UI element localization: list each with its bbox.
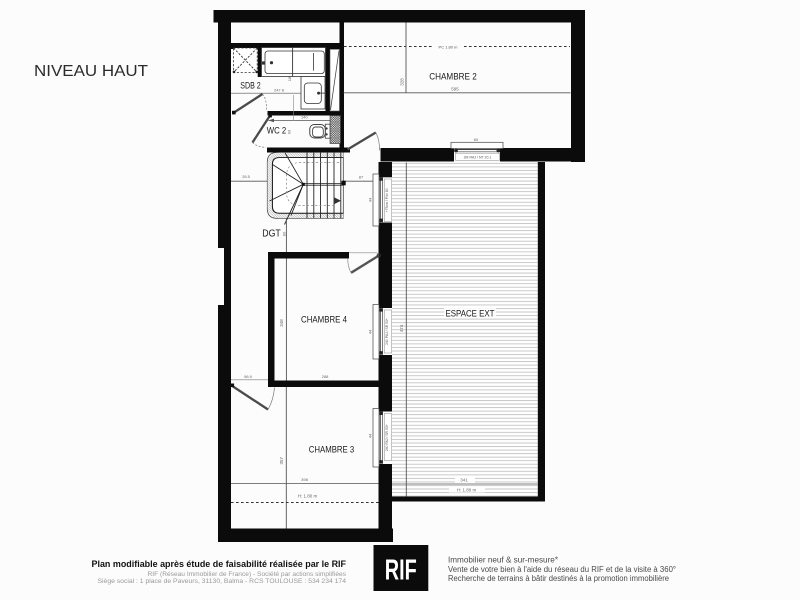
svg-text:93: 93 <box>287 129 292 134</box>
svg-text:87: 87 <box>359 175 364 180</box>
svg-text:RIF: RIF <box>385 555 417 587</box>
svg-text:140: 140 <box>301 115 308 120</box>
svg-text:RIF (Réseau Immobilier de Fran: RIF (Réseau Immobilier de France) - Soci… <box>148 571 347 578</box>
svg-text:Vente de votre bien à l'aide d: Vente de votre bien à l'aide du réseau d… <box>448 565 676 574</box>
svg-text:NIVEAU HAUT: NIVEAU HAUT <box>34 63 149 80</box>
svg-text:80: 80 <box>282 231 287 236</box>
svg-text:DGT: DGT <box>262 229 281 240</box>
svg-text:44: 44 <box>368 329 373 334</box>
svg-text:PC 1.80 m: PC 1.80 m <box>439 45 459 50</box>
svg-text:26.5: 26.5 <box>242 174 251 179</box>
svg-text:SDB 2: SDB 2 <box>240 81 261 91</box>
svg-text:44: 44 <box>368 197 373 202</box>
svg-text:348: 348 <box>279 319 284 327</box>
svg-text:18: 18 <box>287 76 292 81</box>
svg-text:44: 44 <box>368 433 373 438</box>
svg-text:595: 595 <box>451 86 459 91</box>
svg-text:398: 398 <box>301 477 308 482</box>
svg-text:Siège social : 1 place de Pave: Siège social : 1 place de Paveurs, 31130… <box>98 578 347 585</box>
svg-text:2M RAJ / NT 20.1: 2M RAJ / NT 20.1 <box>464 156 492 160</box>
svg-text:H: 1.80 m: H: 1.80 m <box>298 494 318 499</box>
svg-text:ESPACE EXT: ESPACE EXT <box>446 309 495 320</box>
svg-text:328: 328 <box>399 78 404 86</box>
svg-text:357: 357 <box>279 457 284 465</box>
svg-text:Immobilier neuf & sur-mesure*: Immobilier neuf & sur-mesure* <box>448 556 558 565</box>
svg-text:Recherche de terrains à bâtir: Recherche de terrains à bâtir destinés à… <box>448 574 669 583</box>
svg-text:60: 60 <box>474 137 479 142</box>
svg-text:CHAMBRE 4: CHAMBRE 4 <box>301 315 347 326</box>
svg-text:H: 1.80 m: H: 1.80 m <box>457 487 477 492</box>
svg-text:CHAMBRE 2: CHAMBRE 2 <box>429 72 477 83</box>
svg-text:341: 341 <box>460 478 468 483</box>
svg-text:96.9: 96.9 <box>244 374 253 379</box>
svg-text:240 PAJ / SR 53+: 240 PAJ / SR 53+ <box>385 318 389 345</box>
svg-text:474: 474 <box>399 324 404 332</box>
svg-text:WC 2: WC 2 <box>267 126 287 137</box>
svg-text:240 PAJ / SR 53+: 240 PAJ / SR 53+ <box>385 424 389 451</box>
svg-text:288: 288 <box>322 374 329 379</box>
svg-text:247 8: 247 8 <box>274 88 285 93</box>
svg-text:Plan modifiable après étude de: Plan modifiable après étude de faisabili… <box>92 559 347 570</box>
svg-text:CHAMBRE 3: CHAMBRE 3 <box>309 445 355 456</box>
svg-text:+75cm / P.lin 80: +75cm / P.lin 80 <box>385 188 389 212</box>
